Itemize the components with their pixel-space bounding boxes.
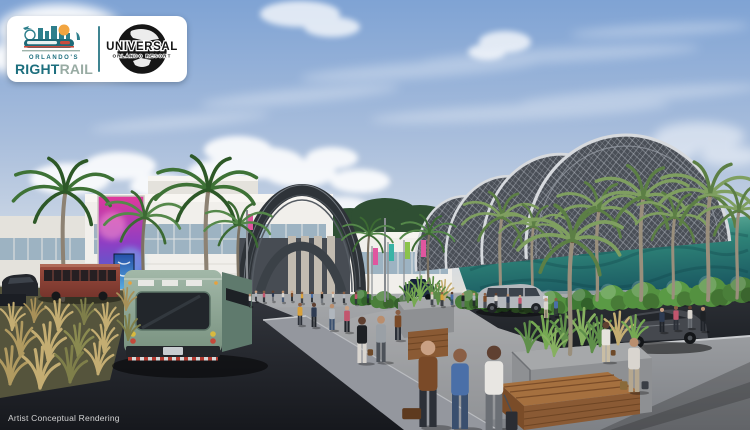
universal-globe-icon: UNIVERSAL ORLANDO RESORT — [105, 21, 179, 77]
concept-rendering-image: ORLANDO'S RIGHTRAIL UNIVERSAL ORLANDO RE… — [0, 0, 750, 430]
logo-card: ORLANDO'S RIGHTRAIL UNIVERSAL ORLANDO RE… — [7, 16, 187, 82]
bus-maroon — [38, 264, 122, 304]
artist-rendering-caption: Artist Conceptual Rendering — [8, 413, 120, 423]
shuttle-bus-teal — [112, 270, 268, 378]
rightrail-train-icon — [18, 22, 90, 54]
logo-divider — [98, 26, 100, 72]
svg-text:ORLANDO RESORT: ORLANDO RESORT — [112, 54, 171, 59]
rightrail-wordmark: RIGHTRAIL — [15, 62, 93, 76]
svg-text:UNIVERSAL: UNIVERSAL — [106, 41, 178, 53]
universal-orlando-logo: UNIVERSAL ORLANDO RESORT — [105, 21, 179, 77]
orlandos-rightrail-logo: ORLANDO'S RIGHTRAIL — [15, 22, 93, 76]
